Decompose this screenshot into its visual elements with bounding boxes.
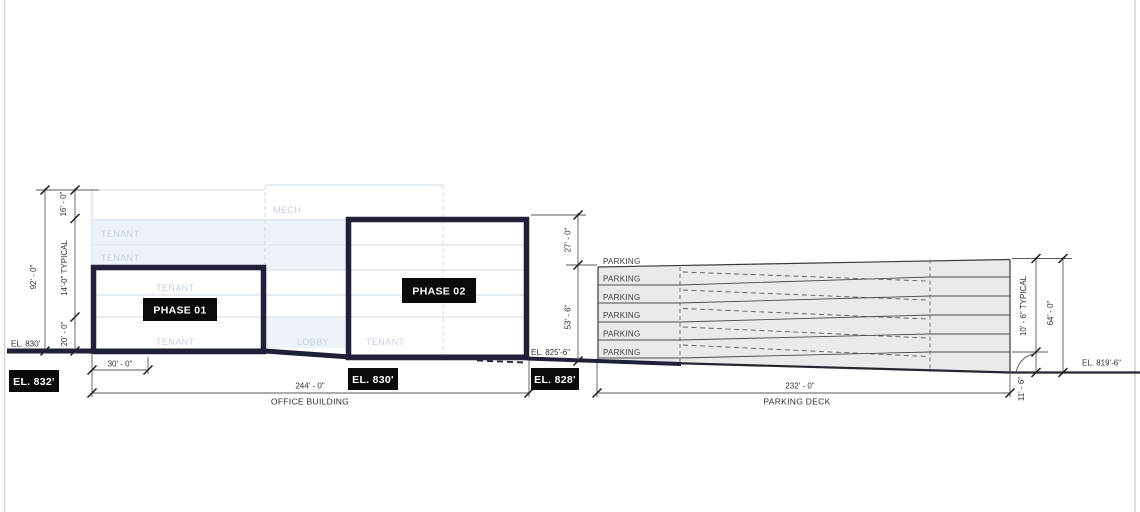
elevation-svg: MECH TENANT TENANT TENANT TENANT LOBBY T… <box>0 0 1140 512</box>
tenant-label-1: TENANT <box>101 229 140 239</box>
dim-11-6-label: 11' - 6" <box>1017 377 1026 401</box>
dims-bottom-office: 30' - 0" 244' - 0" OFFICE BUILDING <box>88 355 534 407</box>
dim-53-label: 53' - 6" <box>564 304 573 329</box>
el-832-badge-label: EL. 832' <box>13 376 55 388</box>
elevation-drawing: MECH TENANT TENANT TENANT TENANT LOBBY T… <box>0 0 1140 512</box>
phase-02-badge-label: PHASE 02 <box>412 286 465 298</box>
tenant-label-5: TENANT <box>366 337 405 347</box>
dim-64-label: 64' - 0" <box>1046 300 1055 325</box>
ground-line-dashed <box>477 361 524 363</box>
dim-20-label: 20' - 0" <box>60 321 69 346</box>
el-832-badge: EL. 832' <box>9 370 59 392</box>
el-828-badge: EL. 828' <box>531 368 579 390</box>
parking-label-4: PARKING <box>603 311 641 320</box>
dims-left-height: 92' - 0" 16' - 0" 14'-0" TYPICAL 20' - 0… <box>29 186 99 356</box>
el-825-6-label: EL. 825'-6" <box>531 348 570 357</box>
dims-phase2-right: 27' - 0" 53' - 6" <box>531 211 597 366</box>
parking-deck: PARKING PARKING PARKING PARKING PARKING … <box>598 257 1010 373</box>
dim-14-typical-label: 14'-0" TYPICAL <box>60 240 69 296</box>
tenant-label-3: TENANT <box>156 283 195 293</box>
dim-92-label: 92' - 0" <box>29 264 38 289</box>
dim-244-label: 244' - 0" <box>295 382 324 391</box>
lobby-label: LOBBY <box>297 337 329 347</box>
el-830-badge-label: EL. 830' <box>352 374 394 386</box>
tenant-label-4: TENANT <box>156 337 195 347</box>
tenant-label-2: TENANT <box>101 253 140 263</box>
parking-label-5: PARKING <box>603 330 641 339</box>
parking-label-3: PARKING <box>603 293 641 302</box>
parking-label-6: PARKING <box>603 348 641 357</box>
parking-label-1: PARKING <box>603 257 641 266</box>
dim-16-label: 16' - 0" <box>59 191 68 216</box>
parking-section-label: PARKING DECK <box>763 397 830 407</box>
el-830-badge: EL. 830' <box>348 368 398 390</box>
parking-label-2: PARKING <box>603 275 641 284</box>
el-819-6-label: EL. 819'-6" <box>1082 359 1121 368</box>
office-section-label: OFFICE BUILDING <box>271 397 349 407</box>
mech-label: MECH <box>273 205 301 215</box>
el-828-badge-label: EL. 828' <box>534 374 576 386</box>
dims-deck-right: 10' - 6" TYPICAL 64' - 0" 11' - 6" <box>1012 254 1072 401</box>
dim-30-label: 30' - 0" <box>108 360 133 369</box>
phase-02-badge: PHASE 02 <box>402 278 476 303</box>
phase-01-badge-label: PHASE 01 <box>153 305 206 317</box>
phase-01-badge: PHASE 01 <box>143 298 217 321</box>
el-830-ground-label: EL. 830' <box>11 340 41 349</box>
dim-27-label: 27' - 0" <box>564 227 573 252</box>
dim-10-6-label: 10' - 6" TYPICAL <box>1019 275 1028 336</box>
dim-arc-leader <box>1016 353 1037 372</box>
dim-232-label: 232' - 0" <box>785 382 814 391</box>
